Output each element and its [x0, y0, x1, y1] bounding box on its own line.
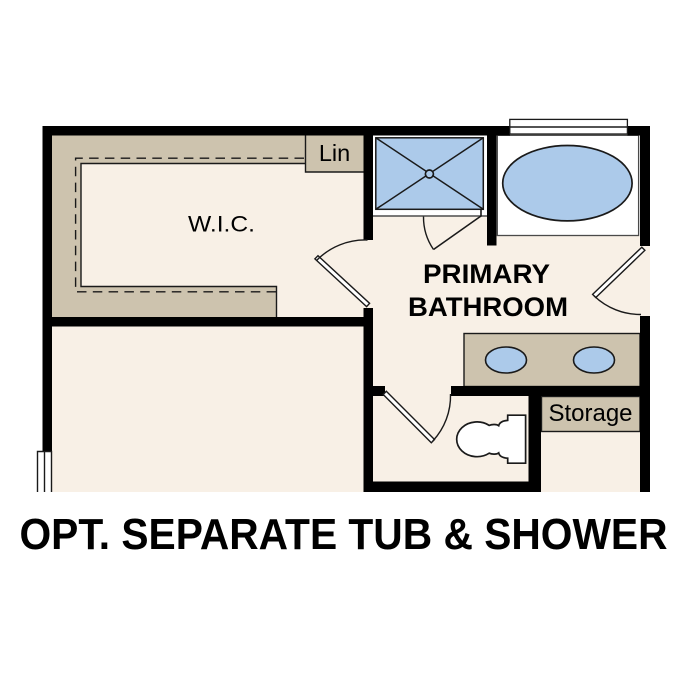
svg-text:Lin: Lin — [319, 140, 350, 166]
svg-text:Storage: Storage — [548, 400, 632, 427]
svg-text:PRIMARY: PRIMARY — [423, 259, 550, 289]
svg-text:OPT. SEPARATE TUB & SHOWER: OPT. SEPARATE TUB & SHOWER — [20, 510, 668, 559]
svg-text:BATHROOM: BATHROOM — [408, 292, 568, 322]
svg-text:W.I.C.: W.I.C. — [188, 212, 255, 237]
